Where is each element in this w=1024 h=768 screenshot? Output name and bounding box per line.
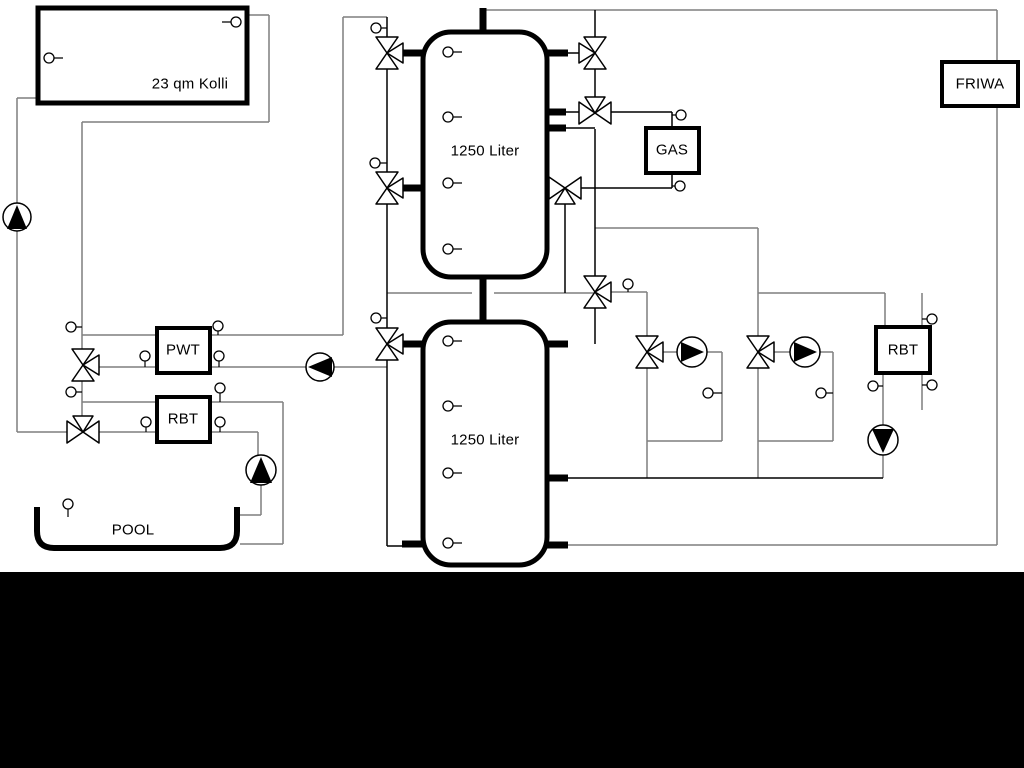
temp-sensor-icon xyxy=(927,314,937,324)
temp-sensor-icon xyxy=(371,313,381,323)
rbt-right-pump-icon xyxy=(868,425,898,455)
temp-sensor-icon xyxy=(370,158,380,168)
hydraulic-schematic: 23 qm Kolli 1250 Liter 1250 Liter GAS FR… xyxy=(0,0,1024,768)
temp-sensor-icon xyxy=(140,351,150,361)
temp-sensor-icon xyxy=(675,181,685,191)
temp-sensor-icon xyxy=(443,336,453,346)
temp-sensor-icon xyxy=(868,381,878,391)
temp-sensor-icon xyxy=(703,388,713,398)
temp-sensor-icon xyxy=(213,321,223,331)
pwt-label: PWT xyxy=(166,342,200,359)
temp-sensor-icon xyxy=(676,110,686,120)
solar-pump-icon xyxy=(3,203,31,231)
rbt-right-label: RBT xyxy=(888,342,919,359)
three-way-valve xyxy=(376,37,403,69)
heating-pump-2-icon xyxy=(790,337,820,367)
three-way-valve xyxy=(67,416,99,443)
temp-sensor-icon xyxy=(215,383,225,393)
three-way-valve xyxy=(376,328,403,360)
pool-pump-icon xyxy=(246,455,276,485)
temp-sensor-icon xyxy=(443,112,453,122)
buffer-tank-top-label: 1250 Liter xyxy=(451,143,520,160)
temp-sensor-icon xyxy=(371,23,381,33)
footer-bar xyxy=(0,572,1024,768)
temp-sensor-icon xyxy=(214,351,224,361)
three-way-valve xyxy=(376,172,403,204)
temp-sensor-icon xyxy=(215,417,225,427)
three-way-valve xyxy=(549,177,581,204)
rbt-left-label: RBT xyxy=(168,411,199,428)
temp-sensor-icon xyxy=(66,322,76,332)
temp-sensor-icon xyxy=(443,401,453,411)
temp-sensor-icon xyxy=(66,387,76,397)
temp-sensor-icon xyxy=(927,380,937,390)
temp-sensor-icon xyxy=(623,279,633,289)
temp-sensor-icon xyxy=(443,47,453,57)
buffer-tank-bottom-label: 1250 Liter xyxy=(451,432,520,449)
temp-sensor-icon xyxy=(443,468,453,478)
temp-sensor-icon xyxy=(443,244,453,254)
temp-sensor-icon xyxy=(44,53,54,63)
temp-sensor-icon xyxy=(443,178,453,188)
three-way-valve xyxy=(579,97,611,124)
temp-sensor-icon xyxy=(141,417,151,427)
gas-boiler-label: GAS xyxy=(656,142,688,159)
temp-sensor-icon xyxy=(63,499,73,509)
temp-sensor-icon xyxy=(443,538,453,548)
heating-pump-1-icon xyxy=(677,337,707,367)
friwa-label: FRIWA xyxy=(956,76,1005,93)
pwt-pump-icon xyxy=(306,353,334,381)
pool-label: POOL xyxy=(112,522,154,539)
three-way-valve xyxy=(747,336,774,368)
collector-label: 23 qm Kolli xyxy=(152,76,228,93)
temp-sensor-icon xyxy=(816,388,826,398)
three-way-valve xyxy=(579,37,606,69)
three-way-valve xyxy=(584,276,611,308)
three-way-valve xyxy=(72,349,99,381)
temp-sensor-icon xyxy=(231,17,241,27)
three-way-valve xyxy=(636,336,663,368)
